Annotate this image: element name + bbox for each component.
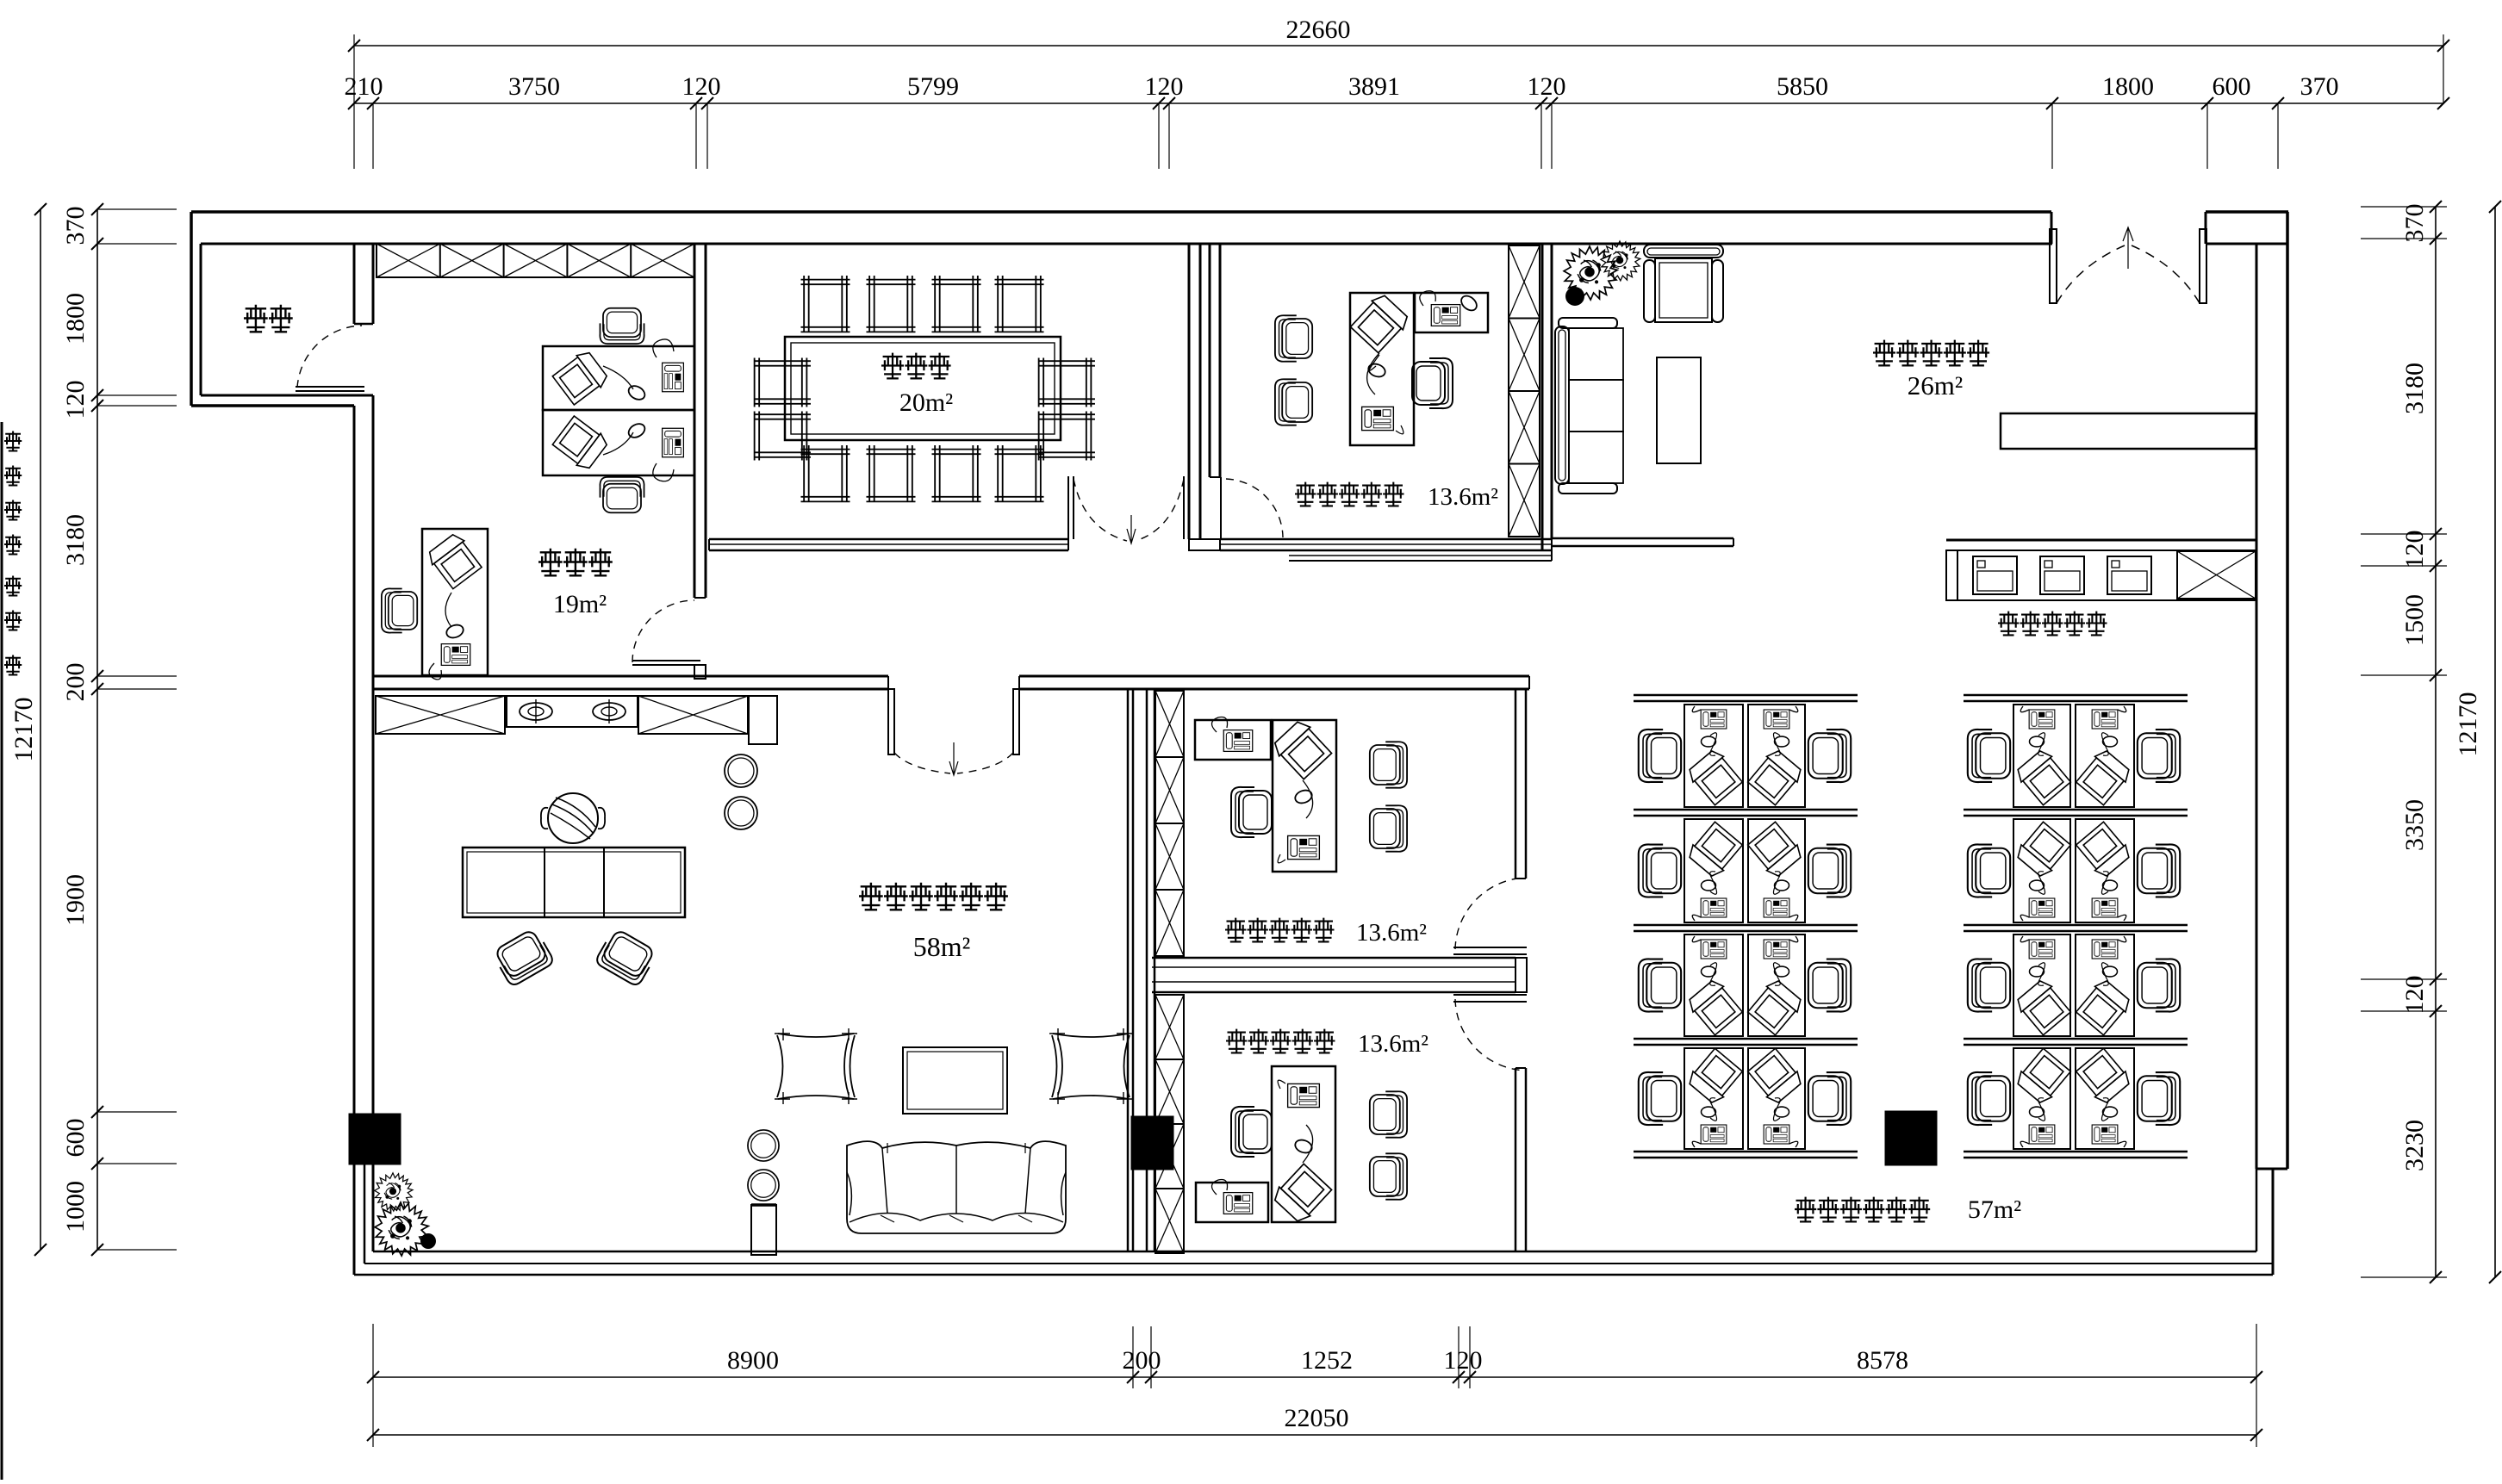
svg-text:370: 370	[61, 207, 90, 245]
svg-text:3180: 3180	[61, 514, 90, 566]
svg-text:3180: 3180	[2400, 363, 2429, 414]
svg-text:26m²: 26m²	[1908, 370, 1963, 400]
svg-text:3230: 3230	[2400, 1120, 2429, 1171]
svg-text:1000: 1000	[61, 1181, 90, 1233]
svg-text:5799: 5799	[907, 72, 959, 101]
svg-text:120: 120	[682, 72, 721, 101]
svg-text:8578: 8578	[1857, 1346, 1908, 1375]
svg-text:370: 370	[2400, 204, 2429, 243]
svg-text:3750: 3750	[508, 72, 560, 101]
svg-text:13.6m²: 13.6m²	[1358, 1030, 1428, 1058]
svg-text:200: 200	[61, 663, 90, 702]
svg-text:120: 120	[1444, 1346, 1483, 1375]
svg-text:200: 200	[1123, 1346, 1161, 1375]
svg-text:20m²: 20m²	[899, 388, 953, 417]
svg-text:210: 210	[345, 72, 383, 101]
svg-text:12170: 12170	[2454, 692, 2482, 757]
svg-text:1800: 1800	[2102, 72, 2154, 101]
svg-text:57m²: 57m²	[1968, 1195, 2021, 1224]
svg-text:3891: 3891	[1348, 72, 1400, 101]
svg-text:12170: 12170	[9, 698, 38, 762]
svg-text:1800: 1800	[61, 293, 90, 345]
svg-text:120: 120	[2400, 531, 2429, 569]
svg-text:1500: 1500	[2400, 594, 2429, 646]
svg-text:8900: 8900	[727, 1346, 779, 1375]
svg-text:120: 120	[1528, 72, 1566, 101]
svg-text:120: 120	[2400, 976, 2429, 1015]
svg-text:13.6m²: 13.6m²	[1428, 483, 1498, 511]
svg-text:120: 120	[1145, 72, 1184, 101]
svg-text:600: 600	[2213, 72, 2251, 101]
svg-text:5850: 5850	[1777, 72, 1828, 101]
svg-text:22660: 22660	[1286, 16, 1351, 44]
svg-text:13.6m²: 13.6m²	[1356, 919, 1427, 947]
svg-text:19m²: 19m²	[553, 590, 607, 618]
svg-text:370: 370	[2300, 72, 2339, 101]
svg-text:1900: 1900	[61, 874, 90, 926]
svg-text:120: 120	[61, 381, 90, 419]
svg-text:600: 600	[61, 1119, 90, 1158]
svg-text:3350: 3350	[2400, 799, 2429, 851]
svg-text:58m²: 58m²	[913, 931, 970, 962]
svg-text:22050: 22050	[1285, 1404, 1349, 1432]
svg-text:1252: 1252	[1301, 1346, 1353, 1375]
